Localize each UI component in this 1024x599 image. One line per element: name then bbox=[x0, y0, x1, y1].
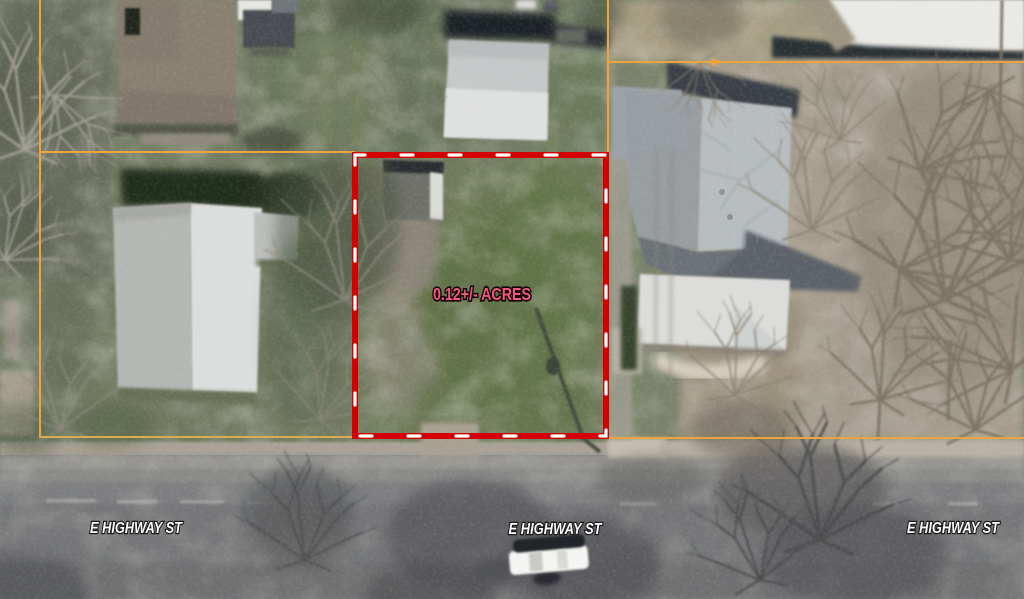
svg-text:0.12+/- ACRES: 0.12+/- ACRES bbox=[433, 284, 531, 304]
svg-text:E HIGHWAY ST: E HIGHWAY ST bbox=[90, 520, 183, 537]
svg-text:E HIGHWAY ST: E HIGHWAY ST bbox=[509, 521, 603, 538]
svg-text:E HIGHWAY ST: E HIGHWAY ST bbox=[907, 520, 1000, 537]
